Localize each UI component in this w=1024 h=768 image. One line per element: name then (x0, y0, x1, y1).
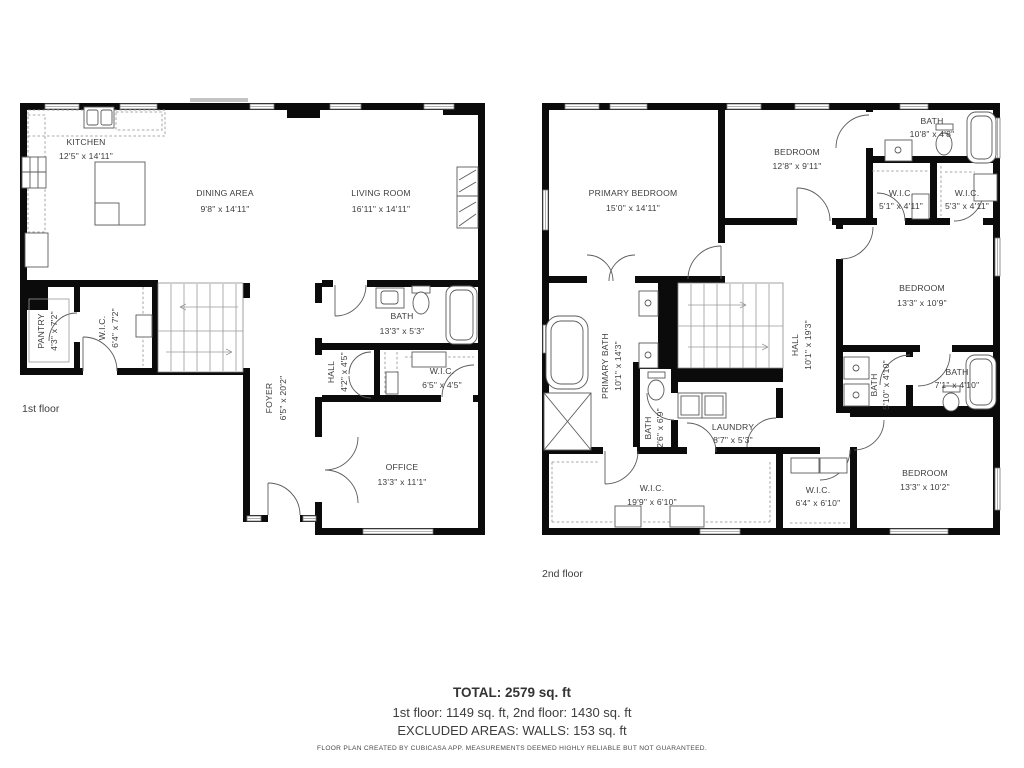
total-area-text: TOTAL: 2579 sq. ft (453, 685, 572, 700)
room-dims-wic-b: 5'3" x 4'11" (945, 201, 989, 211)
room-dims-bath-top: 10'8" x 4'8" (910, 129, 955, 139)
room-label-wic-b: W.I.C. (955, 188, 980, 198)
room-label-primary-bath: PRIMARY BATH (600, 333, 610, 399)
room-dims-hall1: 4'2" x 4'5" (339, 352, 349, 392)
room-dims-bath-d: 7'1" x 4'10" (935, 380, 980, 390)
room-label-bath-top: BATH (920, 116, 943, 126)
stairs-first-floor (158, 283, 243, 372)
room-label-kitchen: KITCHEN (66, 137, 105, 147)
room-dims-office: 13'3" x 11'1" (377, 477, 426, 487)
room-dims-primary-bath: 10'1" x 14'3" (613, 341, 623, 391)
room-label-wic-a: W.I.C. (889, 188, 914, 198)
room-label-wic2: W.I.C. (430, 366, 455, 376)
room-dims-wic-big: 19'9" x 6'10" (627, 497, 677, 507)
room-label-primary-bedroom: PRIMARY BEDROOM (589, 188, 678, 198)
porch-step (190, 98, 248, 102)
room-dims-bath-c: 5'10" x 4'10" (881, 360, 891, 410)
room-dims-wic-a: 5'1" x 4'11" (879, 201, 923, 211)
room-label-dining: DINING AREA (196, 188, 254, 198)
room-label-bath-c: BATH (869, 373, 879, 396)
room-label-foyer: FOYER (264, 383, 274, 414)
floor-plan-canvas: KITCHEN 12'5" x 14'11" DINING AREA 9'8" … (0, 0, 1024, 768)
room-dims-living: 16'11" x 14'11" (352, 204, 410, 214)
room-label-bath-small: BATH (643, 416, 653, 439)
room-label-wic-small: W.I.C. (806, 485, 831, 495)
room-dims-hall2: 10'1" x 19'3" (803, 320, 813, 370)
summary-block: TOTAL: 2579 sq. ft 1st floor: 1149 sq. f… (317, 685, 707, 752)
stairs-second-floor (678, 283, 783, 368)
room-label-bath-d: BATH (945, 367, 968, 377)
kitchen-fixtures (22, 107, 165, 267)
room-label-bedroom-top: BEDROOM (774, 147, 820, 157)
room-dims-wic-small: 6'4" x 6'10" (796, 498, 841, 508)
room-dims-wic1: 6'4" x 7'2" (110, 308, 120, 348)
room-dims-wic2: 6'5" x 4'5" (422, 380, 462, 390)
first-floor-closet-fixtures (29, 287, 474, 394)
room-dims-foyer: 6'5" x 20'2" (278, 376, 288, 421)
room-label-bath1: BATH (390, 311, 413, 321)
room-label-pantry: PANTRY (36, 313, 46, 348)
room-dims-bedroom-right: 13'3" x 10'9" (897, 298, 947, 308)
room-dims-bath-small: 2'6" x 6'9" (655, 408, 665, 448)
small-bath-fixtures (648, 372, 665, 400)
room-dims-bedroom-top: 12'8" x 9'11" (772, 161, 821, 171)
room-label-wic-big: W.I.C. (640, 483, 665, 493)
room-dims-bedroom-bottom: 13'3" x 10'2" (900, 482, 950, 492)
second-floor-plan: PRIMARY BEDROOM 15'0" x 14'11" BEDROOM 1… (542, 103, 1000, 580)
floor-areas-text: 1st floor: 1149 sq. ft, 2nd floor: 1430 … (393, 705, 632, 720)
room-label-bedroom-bottom: BEDROOM (902, 468, 948, 478)
room-label-living: LIVING ROOM (351, 188, 411, 198)
room-label-laundry: LAUNDRY (712, 422, 754, 432)
fireplace-icon (457, 167, 478, 228)
room-label-hall1: HALL (326, 361, 336, 383)
room-label-hall2: HALL (790, 334, 800, 356)
second-floor-caption: 2nd floor (542, 568, 583, 580)
room-dims-bath1: 13'3" x 5'3" (380, 326, 425, 336)
first-floor-plan: KITCHEN 12'5" x 14'11" DINING AREA 9'8" … (20, 98, 485, 535)
room-dims-primary-bedroom: 15'0" x 14'11" (606, 203, 660, 213)
room-label-bedroom-right: BEDROOM (899, 283, 945, 293)
room-dims-kitchen: 12'5" x 14'11" (59, 151, 113, 161)
room-dims-laundry: 8'7" x 5'3" (713, 435, 753, 445)
first-floor-caption: 1st floor (22, 403, 60, 415)
room-dims-dining: 9'8" x 14'11" (200, 204, 249, 214)
excluded-areas-text: EXCLUDED AREAS: WALLS: 153 sq. ft (397, 723, 627, 738)
room-label-wic1: W.I.C. (97, 316, 107, 341)
floor-plan-page: KITCHEN 12'5" x 14'11" DINING AREA 9'8" … (0, 0, 1024, 768)
disclaimer-text: FLOOR PLAN CREATED BY CUBICASA APP. MEAS… (317, 745, 707, 752)
room-label-office: OFFICE (386, 462, 419, 472)
laundry-fixtures (678, 393, 726, 418)
room-dims-pantry: 4'3" x 7'2" (49, 311, 59, 351)
